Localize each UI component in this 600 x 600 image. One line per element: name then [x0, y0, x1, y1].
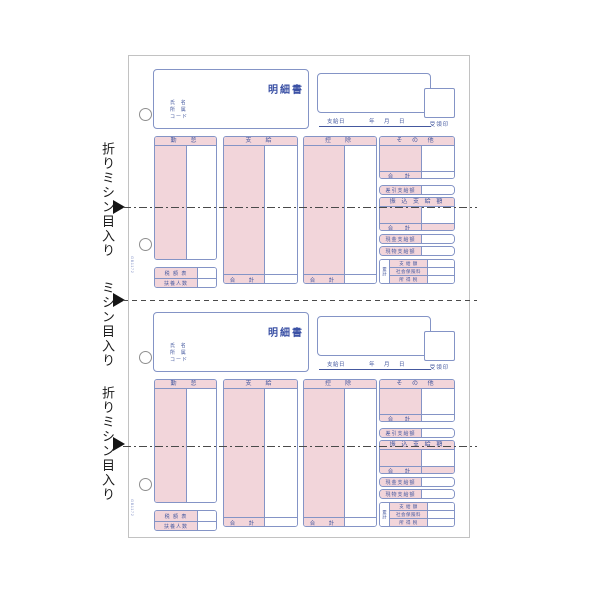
payment-column-header: 支 給: [224, 137, 297, 146]
deduction-column-header: 控 除: [304, 137, 376, 146]
tax-table-box: 税 額 表 扶養人数: [154, 510, 217, 531]
cumulative-tax-row: 所 得 税: [390, 275, 454, 283]
deduction-column-body: [304, 146, 376, 275]
dependents-row: 扶養人数: [155, 278, 216, 287]
tax-table-value: [198, 268, 216, 278]
deduction-total-label: 合 計: [304, 518, 345, 527]
cumulative-pay-label: 支 給 額: [390, 503, 428, 510]
attendance-column: 勤 怠: [154, 379, 217, 503]
punch-hole: [139, 478, 152, 491]
transfer-total-row: 合 計: [380, 467, 454, 474]
deduction-column: 控 除 合 計: [303, 136, 377, 284]
payment-value-cell: [265, 146, 297, 274]
payment-total-row: 合 計: [224, 275, 297, 284]
other-column: そ の 他 合 計: [379, 379, 455, 422]
other-value-cell: [422, 146, 454, 171]
punch-hole: [139, 238, 152, 251]
cumulative-pay-row: 支 給 額: [390, 260, 454, 267]
form-section-bottom: 明細書 氏 名所 属コード 支給日 年 月 日 受領印 勤 怠 税 額 表 扶養…: [129, 299, 471, 542]
fold-perforation-line-top: [123, 207, 477, 208]
dependents-row: 扶養人数: [155, 521, 216, 530]
cumulative-tax-row: 所 得 税: [390, 518, 454, 526]
net-pay-box: 差引支給額: [379, 185, 455, 195]
inkind-pay-value: [422, 247, 454, 255]
payment-total-label: 合 計: [224, 518, 265, 527]
address-window-box: [317, 316, 431, 356]
pay-date-row: 支給日 年 月 日: [319, 116, 431, 127]
cumulative-rows: 支 給 額 社会保険料 所 得 税: [390, 503, 454, 526]
cumulative-tax-label: 所 得 税: [390, 519, 428, 526]
attendance-column: 勤 怠: [154, 136, 217, 260]
code-label: コード: [170, 357, 188, 363]
cumulative-box: 累計 支 給 額 社会保険料 所 得 税: [379, 259, 455, 284]
cash-pay-label: 現金支給額: [380, 235, 422, 243]
dependents-label: 扶養人数: [155, 522, 198, 530]
form-title: 明細書: [268, 324, 304, 339]
transfer-total-value: [422, 224, 454, 231]
cumulative-pay-value: [428, 503, 454, 510]
payment-column: 支 給 合 計: [223, 136, 298, 284]
transfer-total-row: 合 計: [380, 224, 454, 231]
payment-column-body: [224, 146, 297, 275]
form-code-text: GB1172: [130, 499, 135, 516]
cumulative-rows: 支 給 額 社会保険料 所 得 税: [390, 260, 454, 283]
deduction-item-cell: [304, 389, 345, 517]
cash-pay-row: 現金支給額: [380, 235, 454, 243]
other-total-value: [422, 172, 454, 179]
cash-pay-value: [422, 478, 454, 486]
net-pay-row: 差引支給額: [380, 186, 454, 194]
address-window-box: [317, 73, 431, 113]
deduction-column-header: 控 除: [304, 380, 376, 389]
transfer-total-label: 合 計: [380, 467, 422, 474]
deduction-total-row: 合 計: [304, 518, 376, 527]
cumulative-insurance-value: [428, 511, 454, 518]
other-total-row: 合 計: [380, 172, 454, 179]
other-column: そ の 他 合 計: [379, 136, 455, 179]
payment-column-header: 支 給: [224, 380, 297, 389]
deduction-total-row: 合 計: [304, 275, 376, 284]
deduction-column-body: [304, 389, 376, 518]
dependents-value: [198, 522, 216, 530]
transfer-pay-body: [380, 450, 454, 467]
other-total-value: [422, 415, 454, 422]
receipt-stamp-label: 受領印: [422, 363, 457, 371]
cumulative-insurance-value: [428, 268, 454, 275]
code-label: コード: [170, 114, 188, 120]
inkind-pay-label: 現物支給額: [380, 247, 422, 255]
cumulative-box: 累計 支 給 額 社会保険料 所 得 税: [379, 502, 455, 527]
inkind-pay-label: 現物支給額: [380, 490, 422, 498]
tax-table-box: 税 額 表 扶養人数: [154, 267, 217, 288]
other-item-cell: [380, 146, 422, 171]
cash-pay-label: 現金支給額: [380, 478, 422, 486]
name-label: 氏 名: [170, 100, 187, 106]
other-column-header: そ の 他: [380, 137, 454, 146]
payment-total-label: 合 計: [224, 275, 265, 284]
header-box: 明細書 氏 名所 属コード: [153, 69, 309, 129]
perforation-line: [123, 300, 477, 301]
other-total-row: 合 計: [380, 415, 454, 422]
id-labels: 氏 名所 属コード: [170, 343, 188, 364]
inkind-pay-row: 現物支給額: [380, 490, 454, 498]
fold-perforation-line-bottom: [123, 446, 477, 447]
cumulative-insurance-label: 社会保険料: [390, 511, 428, 518]
transfer-value-cell: [422, 450, 454, 466]
tax-table-row: 税 額 表: [155, 268, 216, 278]
dept-label: 所 属: [170, 107, 187, 113]
transfer-pay-body: [380, 207, 454, 224]
net-pay-value: [422, 429, 454, 437]
pay-date-label: 支給日: [327, 117, 345, 125]
deduction-value-cell: [345, 146, 376, 274]
header-box: 明細書 氏 名所 属コード: [153, 312, 309, 372]
inkind-pay-row: 現物支給額: [380, 247, 454, 255]
punch-hole: [139, 351, 152, 364]
cumulative-insurance-row: 社会保険料: [390, 267, 454, 275]
payment-column-body: [224, 389, 297, 518]
deduction-total-value: [345, 518, 376, 527]
cash-pay-box: 現金支給額: [379, 477, 455, 487]
tax-table-value: [198, 511, 216, 521]
cumulative-insurance-row: 社会保険料: [390, 510, 454, 518]
other-column-body: [380, 146, 454, 172]
form-section-top: 明細書 氏 名所 属コード 支給日 年 月 日 受領印 勤 怠 税 額 表 扶養…: [129, 56, 471, 299]
other-column-header: そ の 他: [380, 380, 454, 389]
cumulative-inner: 累計 支 給 額 社会保険料 所 得 税: [380, 503, 454, 526]
form-sheet: 明細書 氏 名所 属コード 支給日 年 月 日 受領印 勤 怠 税 額 表 扶養…: [128, 55, 470, 538]
attendance-item-cell: [155, 146, 187, 260]
net-pay-row: 差引支給額: [380, 429, 454, 437]
arrow-icon: [113, 437, 125, 451]
receipt-stamp-label: 受領印: [422, 120, 457, 128]
cash-pay-box: 現金支給額: [379, 234, 455, 244]
transfer-pay-box: 振 込 支 給 額 合 計: [379, 197, 455, 231]
dept-label: 所 属: [170, 350, 187, 356]
payment-column: 支 給 合 計: [223, 379, 298, 527]
date-units-label: 年 月 日: [369, 117, 407, 125]
receipt-stamp-box: [424, 88, 455, 118]
dependents-label: 扶養人数: [155, 279, 198, 287]
product-photo: 折りミシン目入り ミシン目入り 折りミシン目入り 明細書 氏 名所 属コード 支…: [0, 0, 600, 600]
payment-item-cell: [224, 389, 265, 517]
other-total-label: 合 計: [380, 172, 422, 179]
dependents-value: [198, 279, 216, 287]
transfer-total-value: [422, 467, 454, 474]
form-code-text: GB1172: [130, 256, 135, 273]
cumulative-pay-row: 支 給 額: [390, 503, 454, 510]
tax-table-label: 税 額 表: [155, 268, 198, 278]
name-label: 氏 名: [170, 343, 187, 349]
attendance-column-body: [155, 146, 216, 260]
net-pay-label: 差引支給額: [380, 429, 422, 437]
payment-total-value: [265, 275, 297, 284]
transfer-total-label: 合 計: [380, 224, 422, 231]
other-value-cell: [422, 389, 454, 414]
receipt-stamp-box: [424, 331, 455, 361]
transfer-item-cell: [380, 450, 422, 466]
deduction-total-label: 合 計: [304, 275, 345, 284]
cash-pay-value: [422, 235, 454, 243]
punch-hole: [139, 108, 152, 121]
other-total-label: 合 計: [380, 415, 422, 422]
payment-value-cell: [265, 389, 297, 517]
payment-total-value: [265, 518, 297, 527]
other-column-body: [380, 389, 454, 415]
cumulative-pay-value: [428, 260, 454, 267]
net-pay-value: [422, 186, 454, 194]
other-item-cell: [380, 389, 422, 414]
inkind-pay-box: 現物支給額: [379, 246, 455, 256]
payment-item-cell: [224, 146, 265, 274]
attendance-column-header: 勤 怠: [155, 380, 216, 389]
inkind-pay-value: [422, 490, 454, 498]
deduction-column: 控 除 合 計: [303, 379, 377, 527]
net-pay-box: 差引支給額: [379, 428, 455, 438]
cumulative-label: 累計: [380, 503, 390, 526]
attendance-value-cell: [187, 146, 216, 260]
tax-table-label: 税 額 表: [155, 511, 198, 521]
payment-total-row: 合 計: [224, 518, 297, 527]
cumulative-tax-value: [428, 276, 454, 283]
attendance-column-header: 勤 怠: [155, 137, 216, 146]
cumulative-inner: 累計 支 給 額 社会保険料 所 得 税: [380, 260, 454, 283]
cumulative-tax-label: 所 得 税: [390, 276, 428, 283]
deduction-value-cell: [345, 389, 376, 517]
pay-date-label: 支給日: [327, 360, 345, 368]
cumulative-label: 累計: [380, 260, 390, 283]
transfer-value-cell: [422, 207, 454, 223]
cash-pay-row: 現金支給額: [380, 478, 454, 486]
date-units-label: 年 月 日: [369, 360, 407, 368]
pay-date-row: 支給日 年 月 日: [319, 359, 431, 370]
deduction-item-cell: [304, 146, 345, 274]
cumulative-pay-label: 支 給 額: [390, 260, 428, 267]
tax-table-row: 税 額 表: [155, 511, 216, 521]
inkind-pay-box: 現物支給額: [379, 489, 455, 499]
id-labels: 氏 名所 属コード: [170, 100, 188, 121]
transfer-pay-header: 振 込 支 給 額: [380, 198, 454, 207]
cumulative-tax-value: [428, 519, 454, 526]
cumulative-insurance-label: 社会保険料: [390, 268, 428, 275]
form-title: 明細書: [268, 81, 304, 96]
deduction-total-value: [345, 275, 376, 284]
net-pay-label: 差引支給額: [380, 186, 422, 194]
transfer-item-cell: [380, 207, 422, 223]
